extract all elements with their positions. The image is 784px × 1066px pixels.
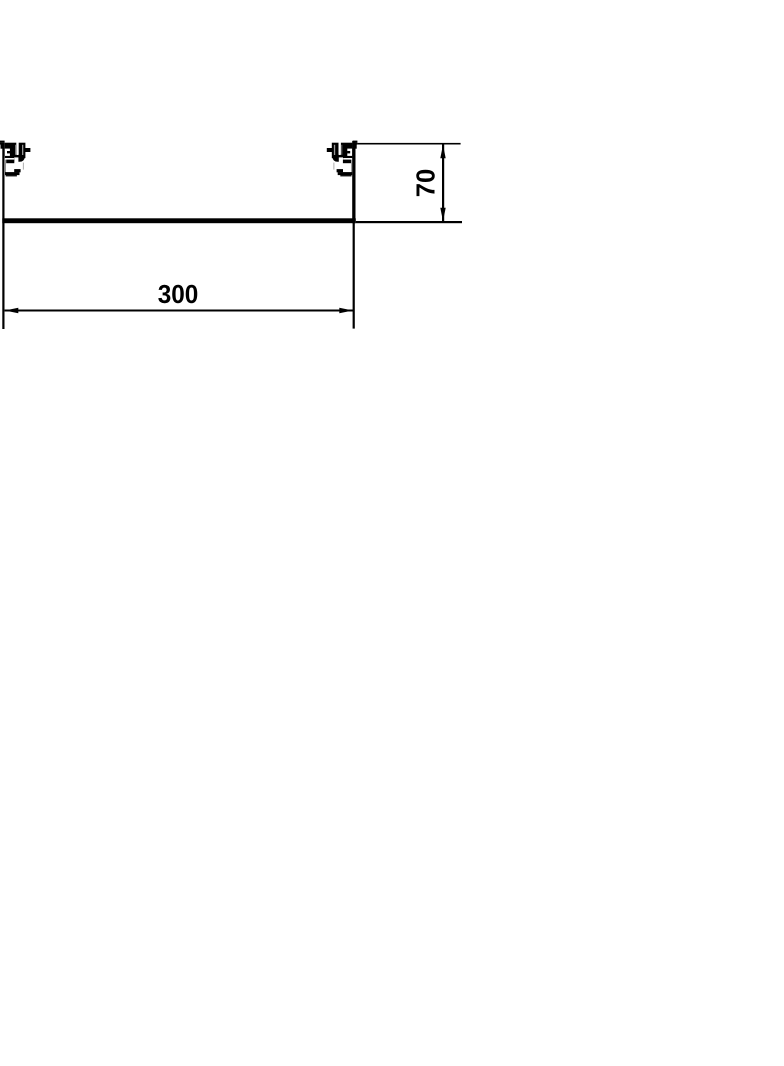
svg-text:300: 300 <box>158 281 199 309</box>
svg-text:70: 70 <box>411 169 441 198</box>
